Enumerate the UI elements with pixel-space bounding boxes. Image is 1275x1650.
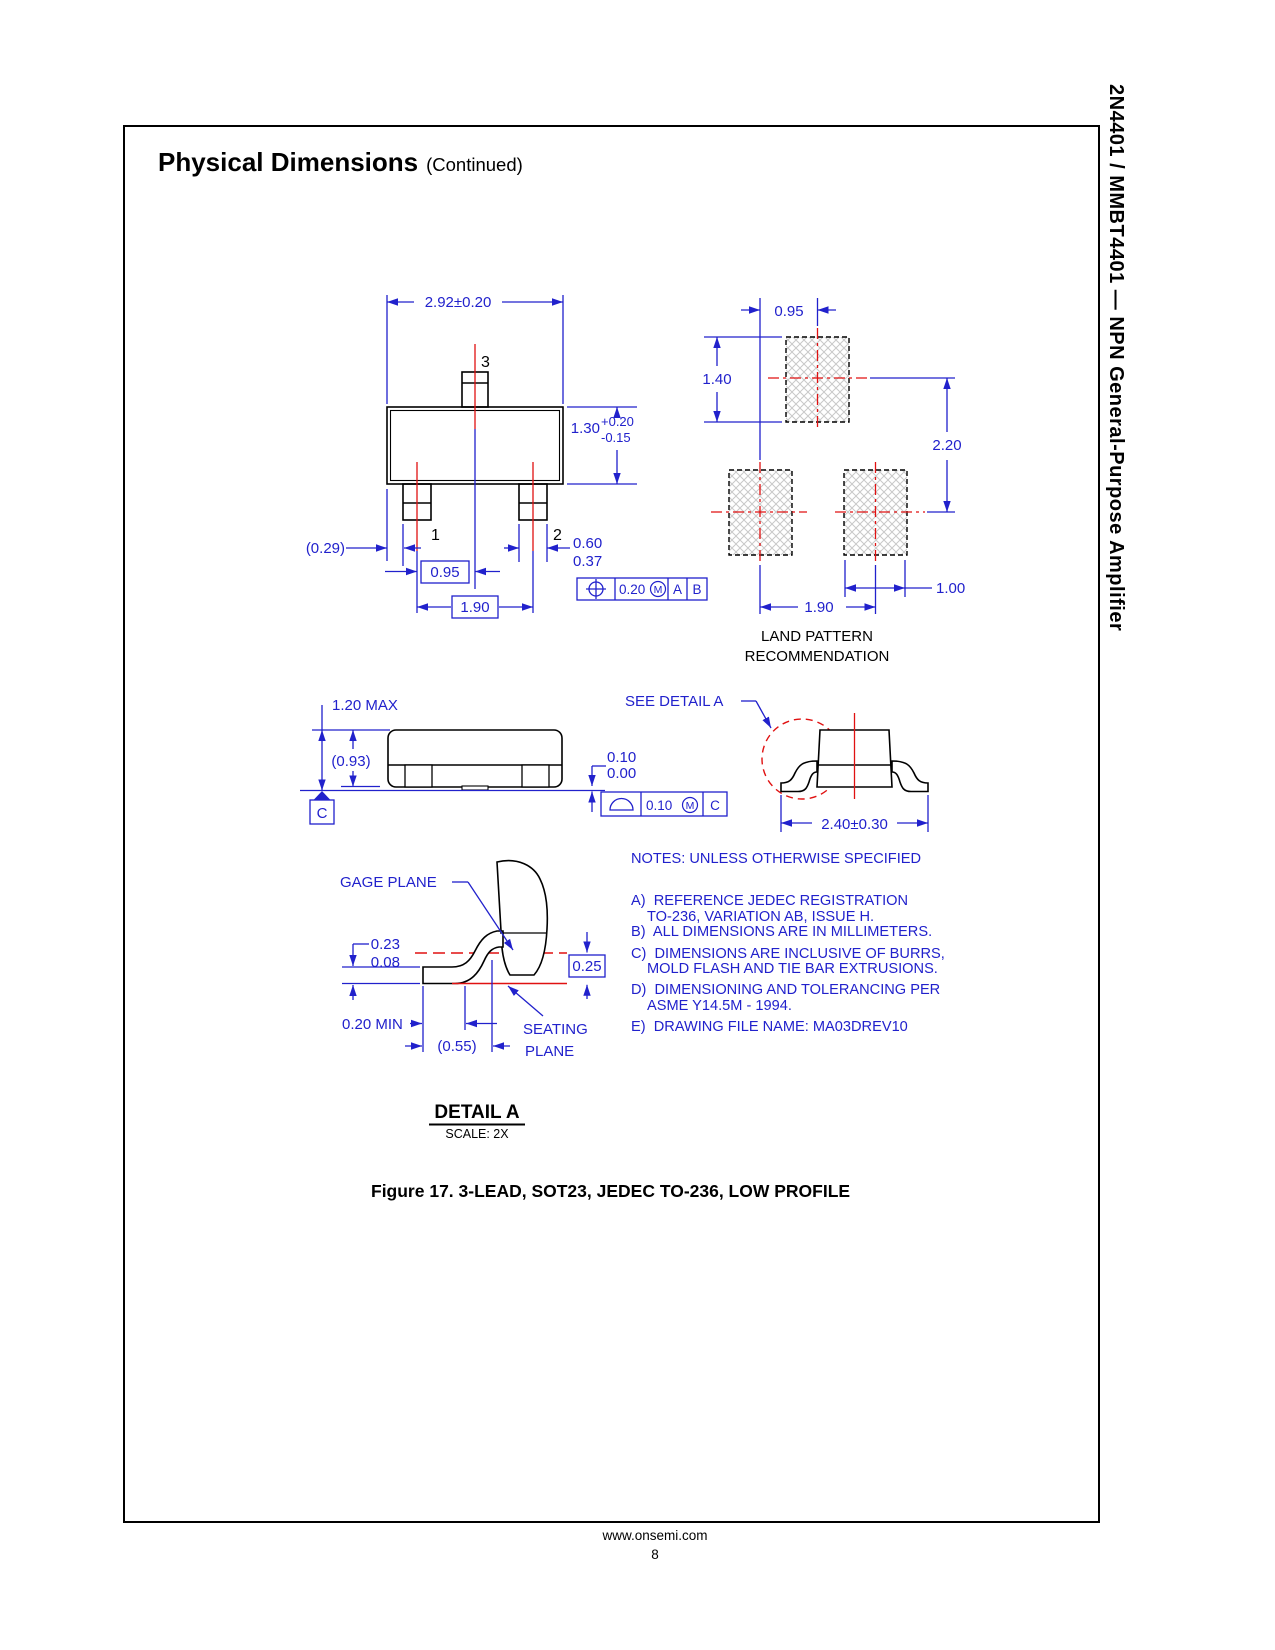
detail-callout-leader <box>741 701 771 728</box>
profile-surface-icon <box>610 799 633 811</box>
fcf2-modifier: M <box>686 800 695 812</box>
datum-c-symbol: C <box>310 791 334 824</box>
dim-pad-height: 1.40 <box>702 371 731 388</box>
dim-gage-to-seat: 0.25 <box>572 958 601 975</box>
land-pattern-view: 0.95 1.40 2.20 1.00 1.90 LAND PATTERN RE… <box>702 298 965 665</box>
dim-edge-to-lead: (0.29) <box>306 540 345 557</box>
dim-body-height: 1.30 <box>571 420 600 437</box>
mmc-modifier-icon: M <box>683 798 698 813</box>
fcf-modifier: M <box>654 584 663 596</box>
notes-header: NOTES: UNLESS OTHERWISE SPECIFIED <box>631 852 945 867</box>
position-tolerance-icon <box>586 579 606 599</box>
pads <box>729 337 907 555</box>
dim-body-height-tol-minus: -0.15 <box>601 430 631 445</box>
dim-offset: 0.95 <box>774 303 803 320</box>
dim-thickness-min: 0.08 <box>371 954 400 971</box>
note-d: D) DIMENSIONING AND TOLERANCING PER <box>631 983 945 998</box>
gage-plane-label: GAGE PLANE <box>340 874 437 891</box>
detail-a-view: GAGE PLANE 0.23 0.08 0.25 0.20 MIN (0.55… <box>340 861 605 1141</box>
dim-pad-width: 1.00 <box>936 580 965 597</box>
dim-foot-min: 0.20 MIN <box>342 1016 403 1033</box>
dimension-drawing: 0.20 M A B 2.92±0.20 3 1 2 1.30 +0.20 -0… <box>0 0 1275 1650</box>
dim-overall-width: 2.92±0.20 <box>425 294 492 311</box>
top-view: 0.20 M A B 2.92±0.20 3 1 2 1.30 +0.20 -0… <box>306 294 707 618</box>
side-view: C 1.20 MAX (0.93) 0.10 0.00 <box>300 697 727 824</box>
note-c-cont: MOLD FLASH AND TIE BAR EXTRUSIONS. <box>631 962 945 977</box>
dim-standoff-max: 0.10 <box>607 749 636 766</box>
footer-page-number: 8 <box>651 1547 659 1562</box>
feature-control-frame-position: 0.20 M A B <box>577 578 707 600</box>
see-detail-a-callout: SEE DETAIL A <box>625 693 723 710</box>
fcf2-datum: C <box>710 798 720 813</box>
pin3-label: 3 <box>481 354 490 371</box>
dim-pitch-half: 0.95 <box>430 564 459 581</box>
detail-a-title: DETAIL A <box>434 1102 519 1123</box>
dim-lead-width-min: 0.37 <box>573 553 602 570</box>
seating-plane-label-2: PLANE <box>525 1043 574 1060</box>
pin1-label: 1 <box>431 527 440 544</box>
notes-block: NOTES: UNLESS OTHERWISE SPECIFIED A) REF… <box>631 852 945 1036</box>
dim-body-ref: (0.93) <box>331 753 370 770</box>
body-end-outline <box>497 861 547 975</box>
footer-url: www.onsemi.com <box>602 1528 707 1543</box>
note-b: B) ALL DIMENSIONS ARE IN MILLIMETERS. <box>631 925 945 940</box>
seating-plane-label-1: SEATING <box>523 1021 588 1038</box>
package-side-outline <box>388 730 562 790</box>
land-pattern-label-1: LAND PATTERN <box>761 628 873 645</box>
dim-lead-width-max: 0.60 <box>573 535 602 552</box>
dim-row-pitch: 2.20 <box>932 437 961 454</box>
dim-body-height-tol-plus: +0.20 <box>601 414 634 429</box>
mmc-modifier-icon: M <box>651 582 666 597</box>
dim-thickness-max: 0.23 <box>371 936 400 953</box>
note-d-cont: ASME Y14.5M - 1994. <box>631 999 945 1014</box>
note-e: E) DRAWING FILE NAME: MA03DREV10 <box>631 1020 945 1035</box>
fcf-datum-a: A <box>673 582 682 597</box>
detail-a-scale: SCALE: 2X <box>445 1127 509 1141</box>
fcf2-tolerance: 0.10 <box>646 798 672 813</box>
figure-caption: Figure 17. 3-LEAD, SOT23, JEDEC TO-236, … <box>371 1181 850 1202</box>
land-pattern-label-2: RECOMMENDATION <box>745 648 890 665</box>
fcf-tolerance: 0.20 <box>619 582 645 597</box>
note-a: A) REFERENCE JEDEC REGISTRATION <box>631 894 945 909</box>
lead-cross-section <box>423 931 503 984</box>
pin2-label: 2 <box>553 527 562 544</box>
dim-pitch-full: 1.90 <box>460 599 489 616</box>
note-c: C) DIMENSIONS ARE INCLUSIVE OF BURRS, <box>631 947 945 962</box>
dim-col-pitch: 1.90 <box>804 599 833 616</box>
dim-standoff-min: 0.00 <box>607 765 636 782</box>
dim-height-max: 1.20 MAX <box>332 697 398 714</box>
note-a-cont: TO-236, VARIATION AB, ISSUE H. <box>631 910 945 925</box>
feature-control-frame-profile: 0.10 M C <box>601 792 727 816</box>
dim-foot-ref: (0.55) <box>437 1038 476 1055</box>
datasheet-page: Physical Dimensions(Continued) 2N4401 / … <box>0 0 1275 1650</box>
fcf-datum-b: B <box>692 582 701 597</box>
dim-lead-span: 2.40±0.30 <box>821 816 888 833</box>
datum-c-label: C <box>317 805 328 822</box>
